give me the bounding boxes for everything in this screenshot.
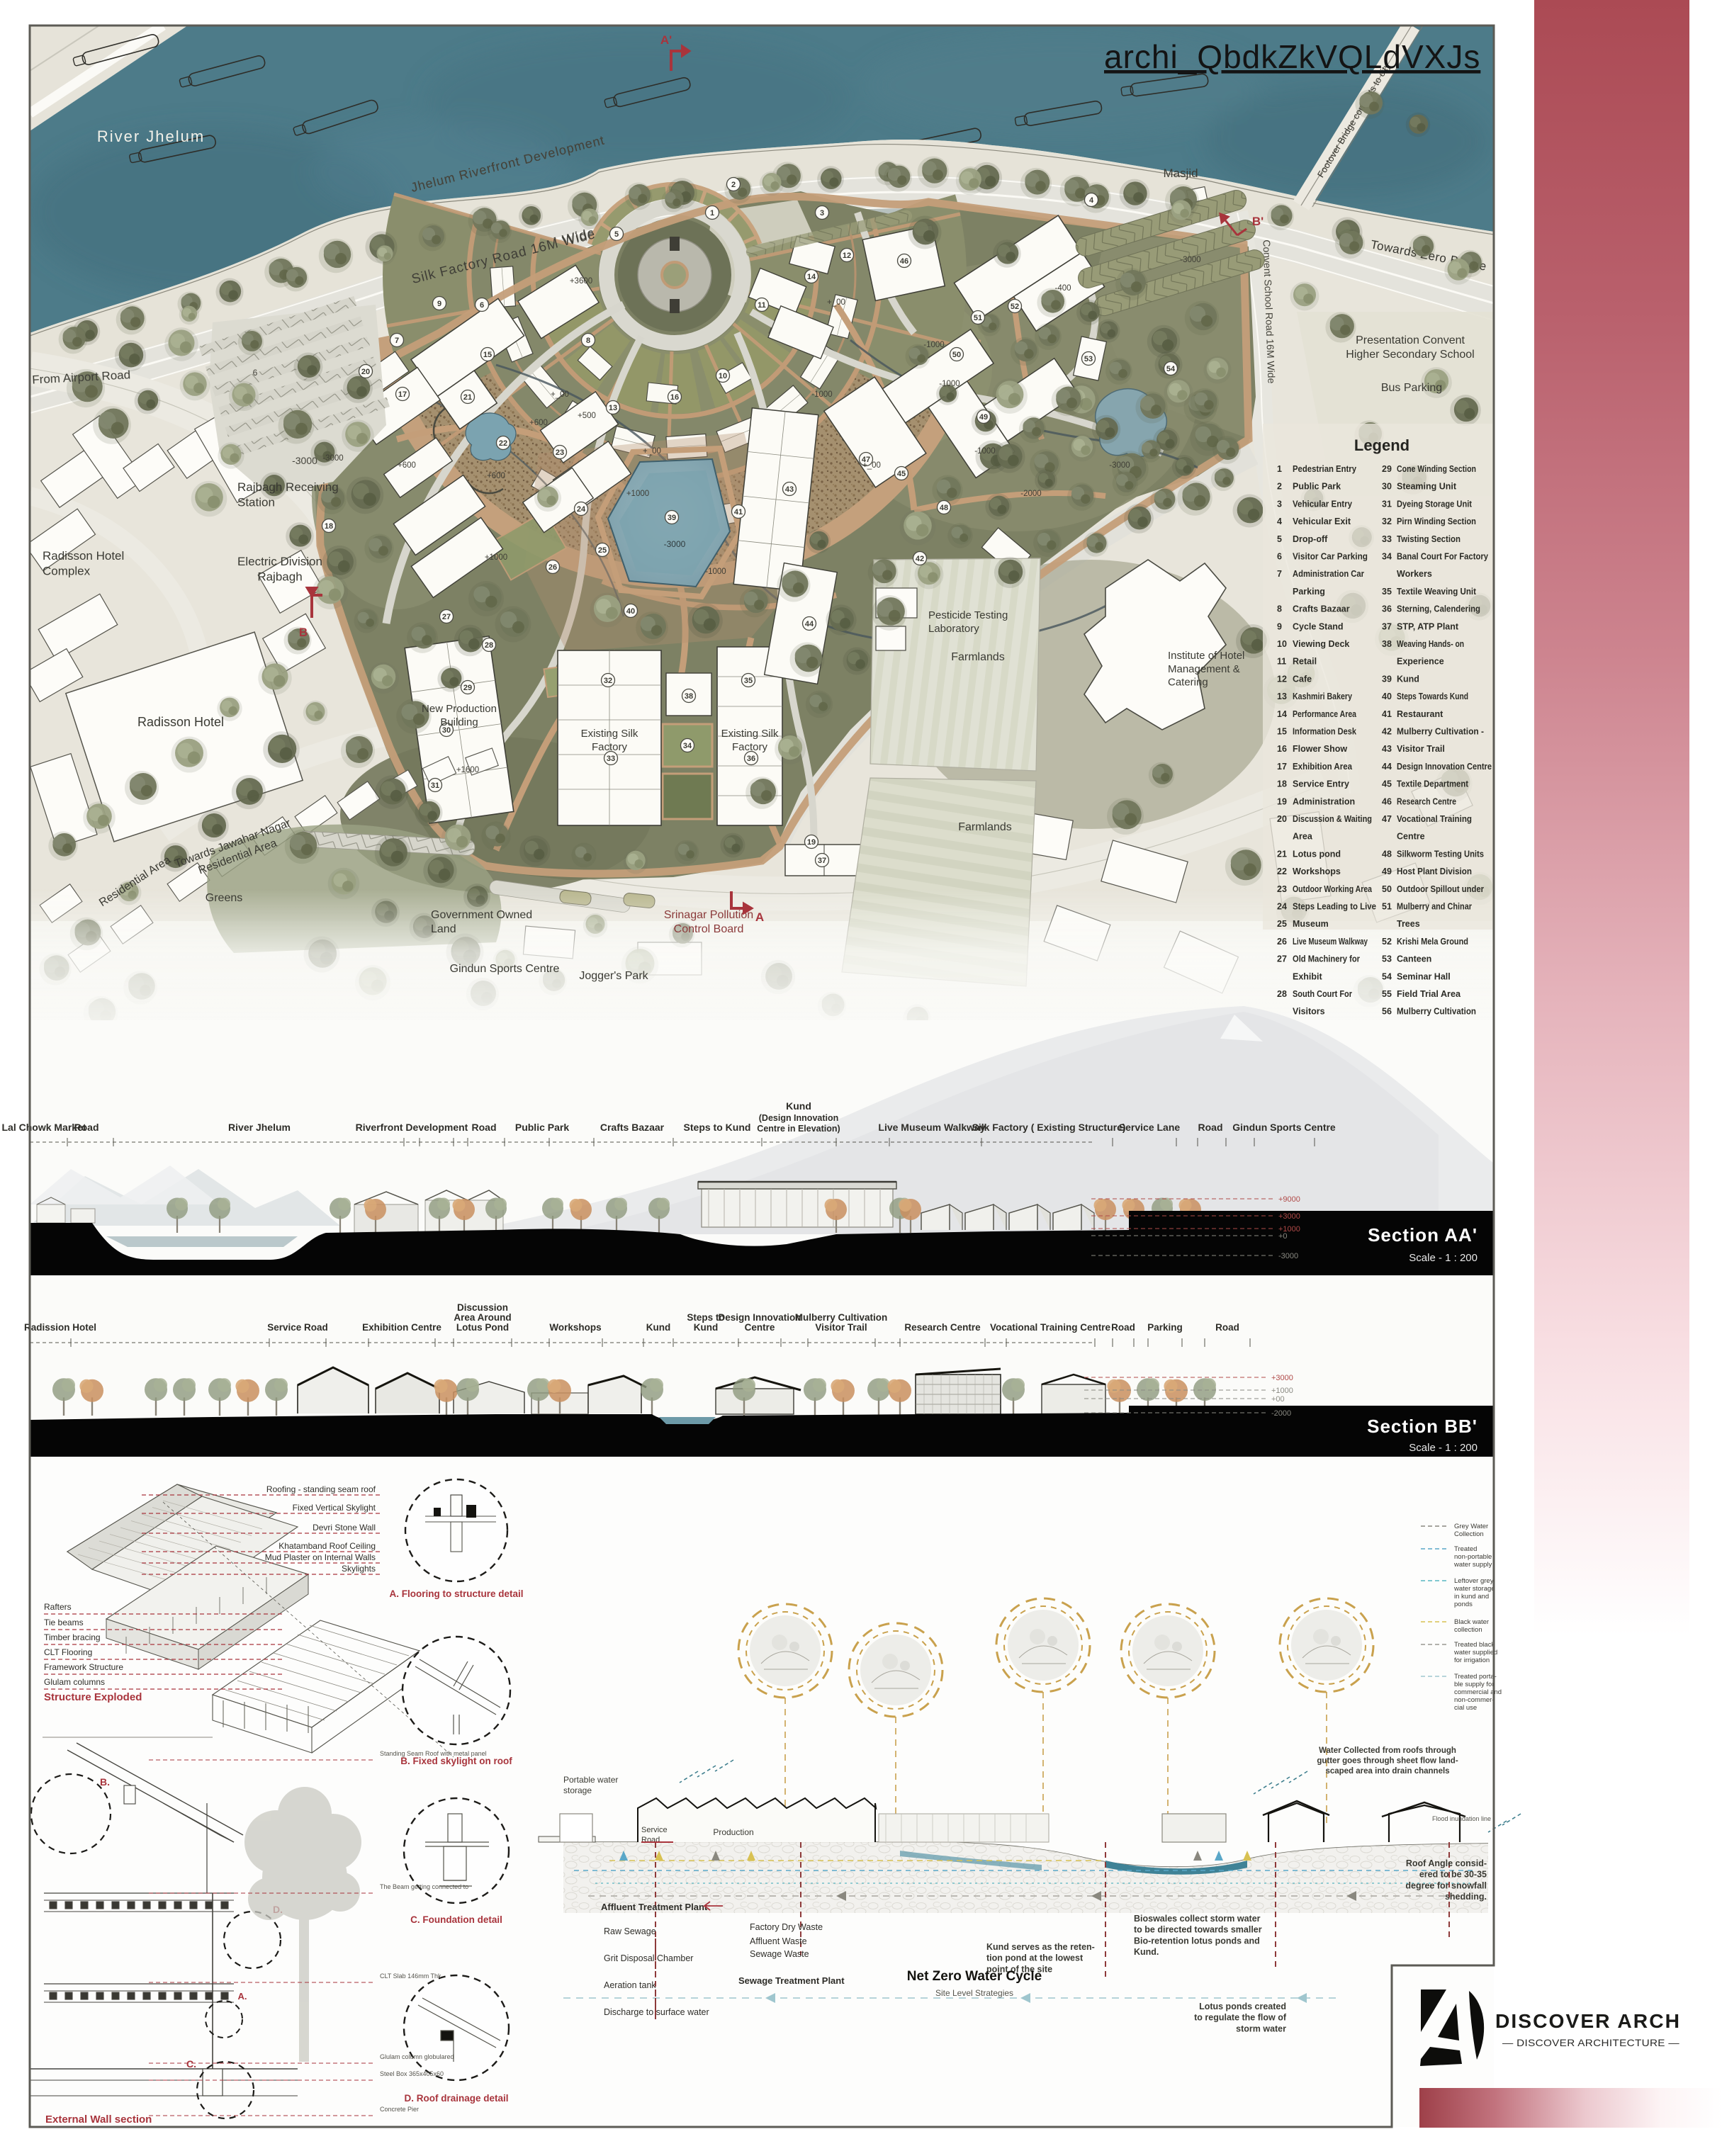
svg-text:-1000: -1000: [974, 447, 995, 456]
svg-text:Mulberry Cultivation: Mulberry Cultivation: [795, 1312, 888, 1323]
svg-text:Sterning, Calendering: Sterning, Calendering: [1397, 604, 1480, 614]
svg-text:52: 52: [1011, 303, 1019, 311]
svg-text:40: 40: [626, 607, 635, 616]
svg-text:Pirn Winding Section: Pirn Winding Section: [1397, 517, 1476, 526]
svg-text:Existing Silk: Existing Silk: [721, 728, 779, 740]
svg-text:Viewing Deck: Viewing Deck: [1293, 639, 1349, 649]
svg-text:Legend: Legend: [1354, 436, 1409, 454]
svg-text:Affluent Waste: Affluent Waste: [750, 1936, 807, 1946]
svg-text:-2000: -2000: [1271, 1409, 1291, 1418]
svg-text:44: 44: [805, 620, 814, 628]
svg-text:Live Museum Walkway: Live Museum Walkway: [878, 1122, 985, 1133]
svg-text:Skylights: Skylights: [342, 1564, 376, 1574]
svg-text:External Wall section: External Wall section: [45, 2113, 152, 2126]
svg-text:Gindun Sports Centre: Gindun Sports Centre: [1232, 1122, 1336, 1133]
svg-text:+1000: +1000: [626, 490, 649, 498]
svg-text:Tie beams: Tie beams: [44, 1618, 84, 1627]
svg-text:Textile Department: Textile Department: [1397, 779, 1469, 789]
svg-text:-3000: -3000: [1278, 1252, 1298, 1260]
svg-text:gutter goes through sheet flow: gutter goes through sheet flow land-: [1317, 1756, 1458, 1765]
svg-text:Higher Secondary School: Higher Secondary School: [1346, 349, 1474, 361]
svg-text:25: 25: [598, 546, 607, 555]
svg-text:Production: Production: [713, 1827, 753, 1837]
svg-text:Visitor Car Parking: Visitor Car Parking: [1293, 552, 1368, 562]
svg-text:Pesticide Testing: Pesticide Testing: [928, 609, 1008, 621]
svg-text:Farmlands: Farmlands: [951, 651, 1005, 663]
svg-text:47: 47: [1382, 814, 1392, 824]
svg-text:Rajbagh: Rajbagh: [257, 570, 302, 583]
svg-text:Bus Parking: Bus Parking: [1381, 382, 1442, 394]
svg-text:Kund: Kund: [694, 1322, 719, 1333]
svg-text:non-commer-: non-commer-: [1454, 1696, 1495, 1704]
svg-text:Management &: Management &: [1168, 663, 1240, 675]
svg-text:Jogger's Park: Jogger's Park: [579, 970, 648, 982]
svg-text:Bioswales collect storm water: Bioswales collect storm water: [1134, 1914, 1261, 1924]
svg-text:Workshops: Workshops: [1293, 867, 1341, 876]
svg-text:7: 7: [1277, 569, 1282, 579]
svg-text:Existing Silk: Existing Silk: [581, 728, 638, 740]
svg-text:+_00: +_00: [862, 461, 881, 470]
svg-text:10: 10: [1277, 639, 1287, 649]
svg-text:Pedestrian Entry: Pedestrian Entry: [1293, 464, 1356, 474]
svg-text:Twisting Section: Twisting Section: [1397, 534, 1461, 544]
svg-text:6: 6: [253, 368, 258, 378]
svg-text:7: 7: [395, 337, 399, 345]
svg-text:36: 36: [747, 755, 755, 763]
svg-text:33: 33: [607, 755, 615, 763]
svg-text:Lotus Pond: Lotus Pond: [456, 1322, 509, 1333]
svg-text:storage: storage: [563, 1785, 592, 1795]
svg-text:37: 37: [1382, 621, 1392, 631]
svg-text:Lotus ponds created: Lotus ponds created: [1199, 2002, 1286, 2011]
svg-text:Control Board: Control Board: [674, 923, 744, 935]
svg-text:Host Plant Division: Host Plant Division: [1397, 867, 1472, 876]
svg-text:Sewage Treatment Plant: Sewage Treatment Plant: [738, 1975, 845, 1986]
svg-text:Service Entry: Service Entry: [1293, 779, 1349, 789]
svg-text:+9000: +9000: [1278, 1195, 1300, 1204]
svg-text:+1000: +1000: [1271, 1387, 1293, 1395]
svg-text:water storage: water storage: [1453, 1585, 1495, 1593]
svg-text:Scale - 1 : 200: Scale - 1 : 200: [1409, 1442, 1478, 1454]
svg-text:DISCOVER ARCH: DISCOVER ARCH: [1495, 2010, 1681, 2032]
svg-text:+_00: +_00: [827, 298, 845, 307]
svg-text:53: 53: [1382, 954, 1392, 964]
svg-text:Workshops: Workshops: [549, 1322, 601, 1333]
svg-text:Vocational Training Centre: Vocational Training Centre: [990, 1322, 1111, 1333]
svg-text:24: 24: [1277, 902, 1287, 912]
svg-text:Field Trial Area: Field Trial Area: [1397, 989, 1461, 999]
svg-text:Silk Factory ( Existing Struct: Silk Factory ( Existing Structure): [972, 1122, 1125, 1133]
svg-text:11: 11: [1277, 657, 1286, 667]
svg-text:Factory: Factory: [732, 741, 768, 753]
svg-text:Mulberry Cultivation -: Mulberry Cultivation -: [1397, 727, 1484, 737]
svg-text:C. Foundation detail: C. Foundation detail: [410, 1914, 502, 1925]
svg-text:Dyeing Storage Unit: Dyeing Storage Unit: [1397, 499, 1473, 509]
svg-text:River Jhelum: River Jhelum: [97, 128, 205, 145]
svg-text:Seminar Hall: Seminar Hall: [1397, 971, 1451, 981]
svg-text:1: 1: [1277, 464, 1282, 474]
svg-text:14: 14: [807, 273, 816, 281]
svg-text:Treated porta-: Treated porta-: [1454, 1673, 1497, 1681]
svg-text:+600: +600: [487, 472, 505, 480]
svg-text:21: 21: [463, 393, 472, 402]
svg-text:Experience: Experience: [1397, 657, 1444, 667]
svg-text:-2000: -2000: [1020, 490, 1041, 498]
svg-text:collection: collection: [1454, 1626, 1482, 1634]
svg-text:for irrigation: for irrigation: [1454, 1656, 1490, 1664]
svg-text:Centre in Elevation): Centre in Elevation): [757, 1124, 840, 1134]
svg-text:Parking: Parking: [1293, 587, 1325, 597]
svg-text:23: 23: [1277, 884, 1287, 894]
svg-text:19: 19: [1277, 796, 1287, 806]
svg-text:+3600: +3600: [570, 277, 592, 286]
svg-text:C.: C.: [186, 2058, 196, 2070]
svg-text:+1000: +1000: [485, 553, 507, 562]
svg-text:8: 8: [1277, 604, 1282, 614]
svg-text:Crafts Bazaar: Crafts Bazaar: [1293, 604, 1350, 614]
svg-text:Discharge to surface water: Discharge to surface water: [604, 2007, 709, 2017]
svg-text:water supply: water supply: [1453, 1561, 1492, 1569]
svg-text:Site Level Strategies: Site Level Strategies: [935, 1988, 1013, 1998]
svg-text:B. Fixed skylight on roof: B. Fixed skylight on roof: [400, 1756, 512, 1766]
svg-text:+3000: +3000: [1271, 1374, 1293, 1382]
svg-text:-3000: -3000: [664, 539, 686, 549]
svg-text:24: 24: [577, 505, 586, 514]
svg-text:Scale - 1 : 200: Scale - 1 : 200: [1409, 1252, 1478, 1264]
svg-text:40: 40: [1382, 692, 1392, 701]
svg-text:28: 28: [1277, 989, 1287, 999]
svg-text:15: 15: [483, 351, 492, 359]
svg-text:38: 38: [685, 692, 693, 701]
svg-text:19: 19: [807, 838, 816, 847]
svg-text:-1000: -1000: [705, 568, 726, 576]
svg-text:34: 34: [1382, 552, 1392, 562]
svg-text:Cone Winding Section: Cone Winding Section: [1397, 464, 1476, 474]
svg-text:Framework Structure: Framework Structure: [44, 1662, 123, 1672]
svg-text:50: 50: [952, 351, 961, 359]
svg-text:Building: Building: [440, 716, 478, 728]
svg-text:Road: Road: [472, 1122, 497, 1133]
svg-text:27: 27: [442, 613, 451, 621]
svg-text:32: 32: [1382, 517, 1392, 526]
svg-text:Radisson Hotel: Radisson Hotel: [43, 549, 124, 563]
svg-text:+00: +00: [1271, 1395, 1285, 1404]
svg-text:48: 48: [1382, 849, 1392, 859]
svg-text:Flower Show: Flower Show: [1293, 744, 1347, 754]
svg-text:Public Park: Public Park: [515, 1122, 569, 1133]
svg-text:23: 23: [556, 448, 564, 457]
svg-text:49: 49: [1382, 867, 1392, 876]
svg-text:16: 16: [670, 393, 679, 402]
svg-text:Glulam columns: Glulam columns: [44, 1677, 105, 1687]
svg-text:Lotus pond: Lotus pond: [1293, 849, 1341, 859]
svg-text:to regulate the flow of: to regulate the flow of: [1194, 2013, 1287, 2023]
svg-text:46: 46: [1382, 796, 1392, 806]
svg-text:Visitor Trail: Visitor Trail: [815, 1322, 867, 1333]
svg-text:South Court For: South Court For: [1293, 989, 1352, 999]
svg-text:Water Collected from roofs thr: Water Collected from roofs through: [1319, 1746, 1456, 1755]
svg-text:Electric Division: Electric Division: [237, 555, 322, 568]
svg-text:Structure Exploded: Structure Exploded: [44, 1691, 142, 1703]
svg-text:Presentation Convent: Presentation Convent: [1356, 334, 1465, 346]
svg-text:2: 2: [731, 181, 736, 189]
svg-text:Service Road: Service Road: [267, 1322, 328, 1333]
svg-text:Drop-off: Drop-off: [1293, 534, 1328, 544]
svg-text:water supplied: water supplied: [1453, 1649, 1497, 1656]
svg-text:Grey Water: Grey Water: [1454, 1523, 1488, 1530]
svg-text:Performance Area: Performance Area: [1293, 709, 1357, 719]
svg-text:56: 56: [1382, 1007, 1392, 1017]
svg-text:Silkworm Testing Units: Silkworm Testing Units: [1397, 849, 1484, 859]
svg-text:CLT Flooring: CLT Flooring: [44, 1647, 92, 1657]
svg-text:Administration Car: Administration Car: [1293, 569, 1364, 579]
svg-text:45: 45: [897, 470, 906, 478]
svg-text:31: 31: [1382, 499, 1392, 509]
svg-text:Public Park: Public Park: [1293, 482, 1341, 492]
svg-text:Net Zero Water Cycle: Net Zero Water Cycle: [907, 1969, 1042, 1984]
svg-text:54: 54: [1382, 971, 1392, 981]
svg-text:2: 2: [1277, 482, 1282, 492]
svg-text:44: 44: [1382, 762, 1392, 772]
svg-text:50: 50: [1382, 884, 1392, 894]
svg-text:cial use: cial use: [1454, 1704, 1477, 1712]
svg-text:ponds: ponds: [1454, 1601, 1473, 1608]
svg-text:Fixed Vertical Skylight: Fixed Vertical Skylight: [293, 1503, 376, 1513]
svg-text:10: 10: [719, 372, 727, 380]
svg-text:Visitor Trail: Visitor Trail: [1397, 744, 1445, 754]
svg-text:Exhibition Centre: Exhibition Centre: [362, 1322, 441, 1333]
svg-text:Trees: Trees: [1397, 919, 1420, 929]
svg-text:CLT Slab 146mm Thk: CLT Slab 146mm Thk: [380, 1972, 441, 1980]
svg-text:Retail: Retail: [1293, 657, 1317, 667]
svg-text:Aeration tank: Aeration tank: [604, 1980, 656, 1990]
svg-text:Exhibit: Exhibit: [1293, 971, 1323, 981]
svg-text:12: 12: [843, 252, 851, 260]
svg-text:25: 25: [1277, 919, 1287, 929]
svg-text:Station: Station: [237, 495, 275, 509]
svg-text:4: 4: [1089, 196, 1094, 205]
svg-text:Radisson Hotel: Radisson Hotel: [137, 715, 224, 729]
svg-text:Textile Weaving Unit: Textile Weaving Unit: [1397, 587, 1477, 597]
svg-text:37: 37: [818, 857, 826, 865]
svg-text:Factory Dry Waste: Factory Dry Waste: [750, 1922, 823, 1932]
svg-text:Government Owned: Government Owned: [431, 909, 532, 921]
svg-text:+600: +600: [529, 419, 548, 427]
svg-text:22: 22: [1277, 867, 1287, 876]
svg-text:tion pond at the lowest: tion pond at the lowest: [986, 1953, 1084, 1963]
svg-text:non-portable: non-portable: [1454, 1553, 1492, 1561]
svg-text:-1000: -1000: [923, 341, 944, 349]
svg-text:+600: +600: [398, 461, 416, 470]
svg-text:Krishi Mela Ground: Krishi Mela Ground: [1397, 937, 1468, 947]
svg-text:9: 9: [1277, 621, 1282, 631]
svg-text:— DISCOVER ARCHITECTURE —: — DISCOVER ARCHITECTURE —: [1502, 2037, 1679, 2048]
svg-text:26: 26: [548, 563, 557, 572]
svg-text:-1000: -1000: [939, 380, 960, 388]
svg-text:degree for snowfall: degree for snowfall: [1405, 1880, 1487, 1890]
svg-text:+3000: +3000: [1278, 1212, 1300, 1221]
svg-text:+_00: +_00: [551, 390, 569, 399]
svg-text:Road: Road: [74, 1122, 99, 1133]
svg-text:+0: +0: [1278, 1232, 1288, 1241]
svg-text:Museum: Museum: [1293, 919, 1329, 929]
svg-text:B: B: [299, 626, 308, 639]
svg-text:Roof Angle consid-: Roof Angle consid-: [1406, 1858, 1487, 1868]
svg-text:Area: Area: [1293, 832, 1313, 842]
svg-text:35: 35: [1382, 587, 1392, 597]
svg-text:16: 16: [1277, 744, 1287, 754]
svg-text:Mulberry Cultivation: Mulberry Cultivation: [1397, 1007, 1476, 1017]
svg-text:Complex: Complex: [43, 564, 91, 577]
svg-text:Laboratory: Laboratory: [928, 623, 979, 635]
svg-text:4: 4: [1277, 517, 1282, 526]
svg-text:29: 29: [463, 684, 472, 692]
svg-text:Institute of Hotel: Institute of Hotel: [1168, 650, 1244, 662]
svg-text:Kund: Kund: [1397, 674, 1419, 684]
svg-text:34: 34: [683, 742, 692, 750]
svg-text:Steps Towards Kund: Steps Towards Kund: [1397, 692, 1468, 701]
svg-text:15: 15: [1277, 727, 1287, 737]
svg-text:Section AA': Section AA': [1368, 1224, 1478, 1246]
svg-text:in kund and: in kund and: [1454, 1593, 1489, 1601]
svg-text:Radission Hotel: Radission Hotel: [24, 1322, 96, 1333]
svg-text:Devri Stone Wall: Devri Stone Wall: [313, 1523, 376, 1533]
svg-text:Vehicular Exit: Vehicular Exit: [1293, 517, 1351, 526]
svg-text:+_00: +_00: [643, 447, 661, 456]
svg-text:Steps to Kund: Steps to Kund: [684, 1122, 751, 1133]
svg-text:3: 3: [820, 209, 824, 218]
svg-text:33: 33: [1382, 534, 1392, 544]
svg-text:Land: Land: [431, 923, 456, 935]
svg-text:Road: Road: [1215, 1322, 1239, 1333]
svg-text:Outdoor Spillout under: Outdoor Spillout under: [1397, 884, 1484, 894]
svg-text:Banal Court For Factory: Banal Court For Factory: [1397, 552, 1488, 562]
svg-text:Outdoor Working Area: Outdoor Working Area: [1293, 884, 1373, 894]
svg-text:20: 20: [1277, 814, 1287, 824]
svg-text:Leftover grey: Leftover grey: [1454, 1577, 1494, 1585]
svg-text:Research Centre: Research Centre: [1397, 796, 1456, 806]
svg-text:Design Innovation: Design Innovation: [718, 1312, 801, 1323]
svg-text:Timber bracing: Timber bracing: [44, 1632, 101, 1642]
svg-text:Srinagar Pollution: Srinagar Pollution: [664, 909, 753, 921]
svg-text:Sewage Waste: Sewage Waste: [750, 1949, 809, 1959]
svg-text:Portable water: Portable water: [563, 1775, 618, 1785]
svg-text:B.: B.: [100, 1776, 110, 1788]
svg-text:Rajbagh Receiving: Rajbagh Receiving: [237, 480, 339, 494]
svg-text:21: 21: [1277, 849, 1287, 859]
svg-text:42: 42: [1382, 727, 1392, 737]
svg-text:Cycle Stand: Cycle Stand: [1293, 621, 1344, 631]
svg-text:The Beam getting connected to: The Beam getting connected to: [380, 1883, 468, 1890]
svg-text:Kund: Kund: [646, 1322, 671, 1333]
svg-text:+500: +500: [578, 412, 596, 420]
svg-text:27: 27: [1277, 954, 1287, 964]
svg-text:5: 5: [1277, 534, 1282, 544]
svg-text:scaped area into drain channel: scaped area into drain channels: [1325, 1767, 1449, 1776]
svg-text:8: 8: [586, 337, 590, 345]
svg-text:5: 5: [614, 230, 619, 239]
svg-text:Khatamband Roof Ceiling: Khatamband Roof Ceiling: [278, 1541, 376, 1551]
svg-text:Steel Box 365x405x60: Steel Box 365x405x60: [380, 2070, 444, 2077]
svg-text:Discussion & Waiting: Discussion & Waiting: [1293, 814, 1372, 824]
svg-text:20: 20: [361, 368, 370, 376]
svg-text:12: 12: [1277, 674, 1287, 684]
svg-text:B': B': [1252, 215, 1264, 228]
svg-text:A. Flooring to structure detai: A. Flooring to structure detail: [389, 1588, 523, 1599]
svg-text:Old Machinery for: Old Machinery for: [1293, 954, 1360, 964]
svg-text:-400: -400: [1054, 284, 1071, 293]
svg-text:Grit Disposal Chamber: Grit Disposal Chamber: [604, 1953, 693, 1963]
svg-text:45: 45: [1382, 779, 1392, 789]
svg-text:36: 36: [1382, 604, 1392, 614]
svg-text:17: 17: [1277, 762, 1287, 772]
svg-text:archi_QbdkZkVQLdVXJs: archi_QbdkZkVQLdVXJs: [1104, 38, 1480, 75]
svg-text:32: 32: [604, 677, 612, 685]
svg-text:(Design Innovation: (Design Innovation: [759, 1113, 839, 1123]
svg-text:Road: Road: [1198, 1122, 1223, 1133]
svg-text:Centre: Centre: [745, 1322, 775, 1333]
svg-text:18: 18: [325, 522, 333, 531]
svg-text:1: 1: [710, 209, 714, 218]
svg-text:Section BB': Section BB': [1367, 1416, 1478, 1437]
svg-text:22: 22: [499, 439, 507, 448]
svg-text:43: 43: [1382, 744, 1392, 754]
svg-text:Affluent Treatment Plant: Affluent Treatment Plant: [601, 1902, 708, 1912]
svg-text:Kund: Kund: [786, 1100, 811, 1112]
svg-text:STP, ATP Plant: STP, ATP Plant: [1397, 621, 1459, 631]
svg-text:11: 11: [758, 301, 766, 310]
svg-text:Exhibition Area: Exhibition Area: [1293, 762, 1353, 772]
svg-text:55: 55: [1382, 989, 1392, 999]
svg-text:42: 42: [916, 555, 924, 563]
svg-text:-1000: -1000: [811, 390, 832, 399]
svg-text:39: 39: [1382, 674, 1392, 684]
svg-text:A.: A.: [238, 1991, 247, 2002]
svg-text:Standing Seam Roof with metal: Standing Seam Roof with metal panel: [380, 1750, 487, 1757]
svg-text:48: 48: [940, 504, 948, 512]
svg-text:+1600: +1600: [456, 766, 479, 774]
svg-text:39: 39: [668, 514, 676, 522]
svg-text:41: 41: [734, 508, 743, 517]
svg-text:51: 51: [974, 314, 982, 322]
svg-text:3: 3: [1277, 499, 1282, 509]
svg-text:Treated: Treated: [1454, 1545, 1477, 1553]
svg-text:13: 13: [609, 404, 617, 412]
svg-text:Service: Service: [641, 1826, 668, 1834]
svg-text:Kund.: Kund.: [1134, 1947, 1159, 1957]
svg-text:Masjid: Masjid: [1163, 167, 1198, 180]
svg-text:Visitors: Visitors: [1293, 1007, 1325, 1017]
svg-text:Mulberry and Chinar: Mulberry and Chinar: [1397, 902, 1472, 912]
svg-text:Raw Sewage: Raw Sewage: [604, 1926, 656, 1936]
svg-text:Road: Road: [1111, 1322, 1135, 1333]
svg-text:Rafters: Rafters: [44, 1602, 72, 1612]
svg-text:Research Centre: Research Centre: [904, 1322, 981, 1333]
svg-text:38: 38: [1382, 639, 1392, 649]
svg-text:-3000: -3000: [1109, 461, 1130, 470]
svg-text:13: 13: [1277, 692, 1287, 701]
svg-text:ered to be 30-35: ered to be 30-35: [1419, 1870, 1487, 1880]
svg-text:Parking: Parking: [1147, 1322, 1183, 1333]
svg-text:Vehicular Entry: Vehicular Entry: [1293, 499, 1352, 509]
svg-text:Concrete Pier: Concrete Pier: [380, 2106, 419, 2113]
svg-text:Discussion: Discussion: [457, 1302, 508, 1313]
svg-text:26: 26: [1277, 937, 1287, 947]
svg-text:-3000: -3000: [322, 454, 343, 463]
svg-text:Area Around: Area Around: [454, 1312, 511, 1323]
svg-text:Weaving Hands- on: Weaving Hands- on: [1397, 639, 1464, 649]
svg-text:Live Museum Walkway: Live Museum Walkway: [1293, 937, 1368, 947]
